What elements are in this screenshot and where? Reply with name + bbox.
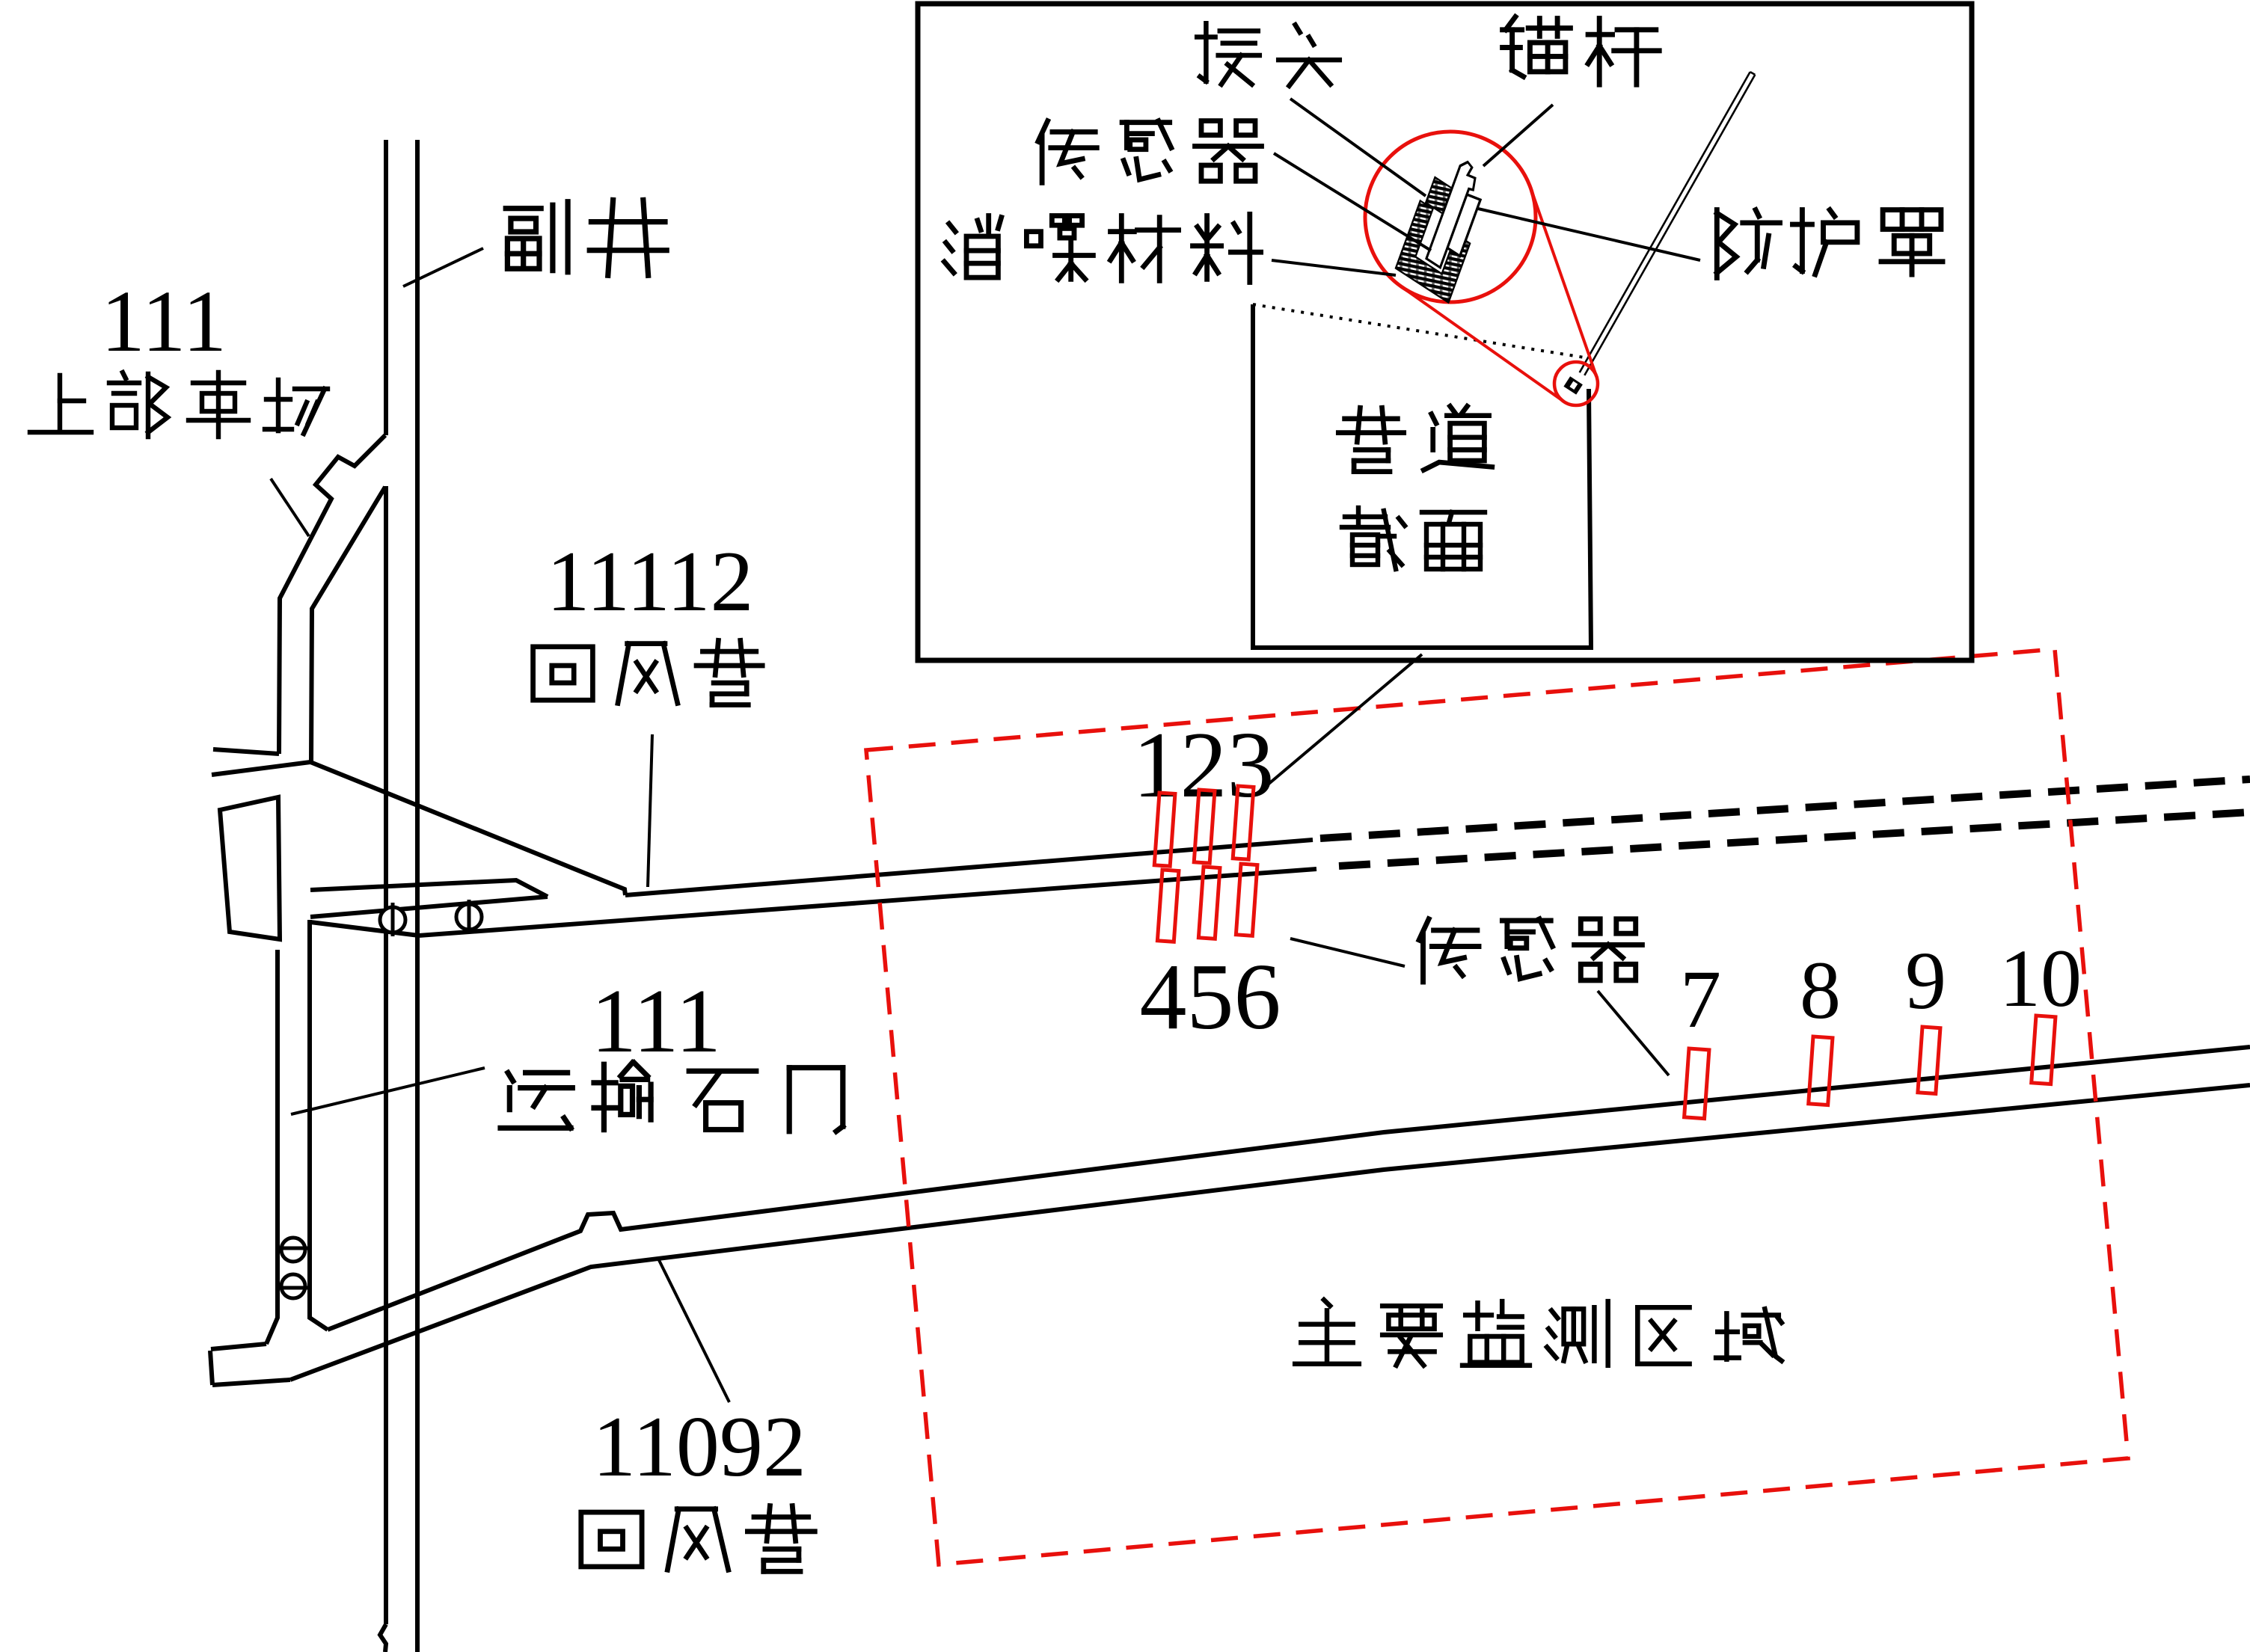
- svg-text:11112: 11112: [546, 534, 753, 630]
- svg-text:111: 111: [101, 272, 227, 370]
- svg-text:11092: 11092: [592, 1399, 806, 1495]
- svg-text:10: 10: [1999, 933, 2082, 1024]
- svg-text:8: 8: [1800, 945, 1841, 1036]
- svg-text:7: 7: [1680, 954, 1721, 1045]
- svg-text:9: 9: [1905, 935, 1946, 1026]
- svg-text:111: 111: [591, 971, 721, 1072]
- svg-text:456: 456: [1140, 945, 1281, 1049]
